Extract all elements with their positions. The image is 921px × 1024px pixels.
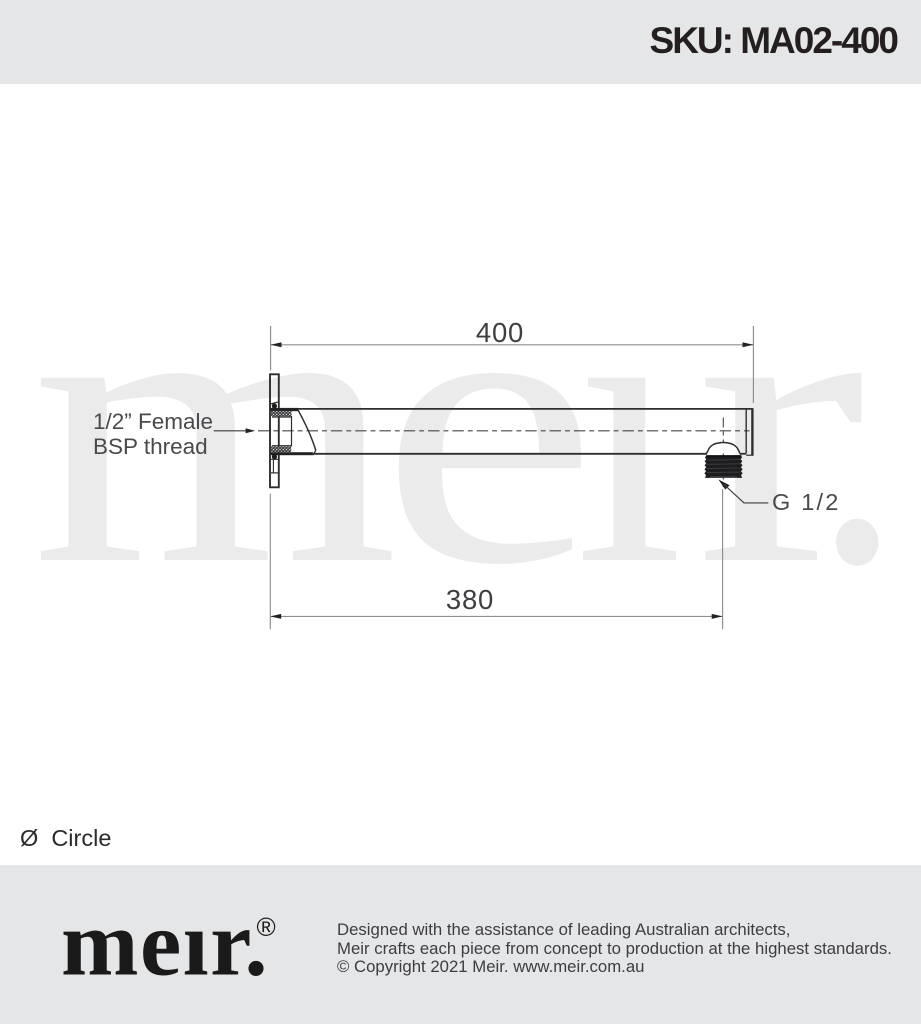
svg-text:®: ® [257,912,276,942]
svg-text:meır.: meır. [61,893,269,996]
